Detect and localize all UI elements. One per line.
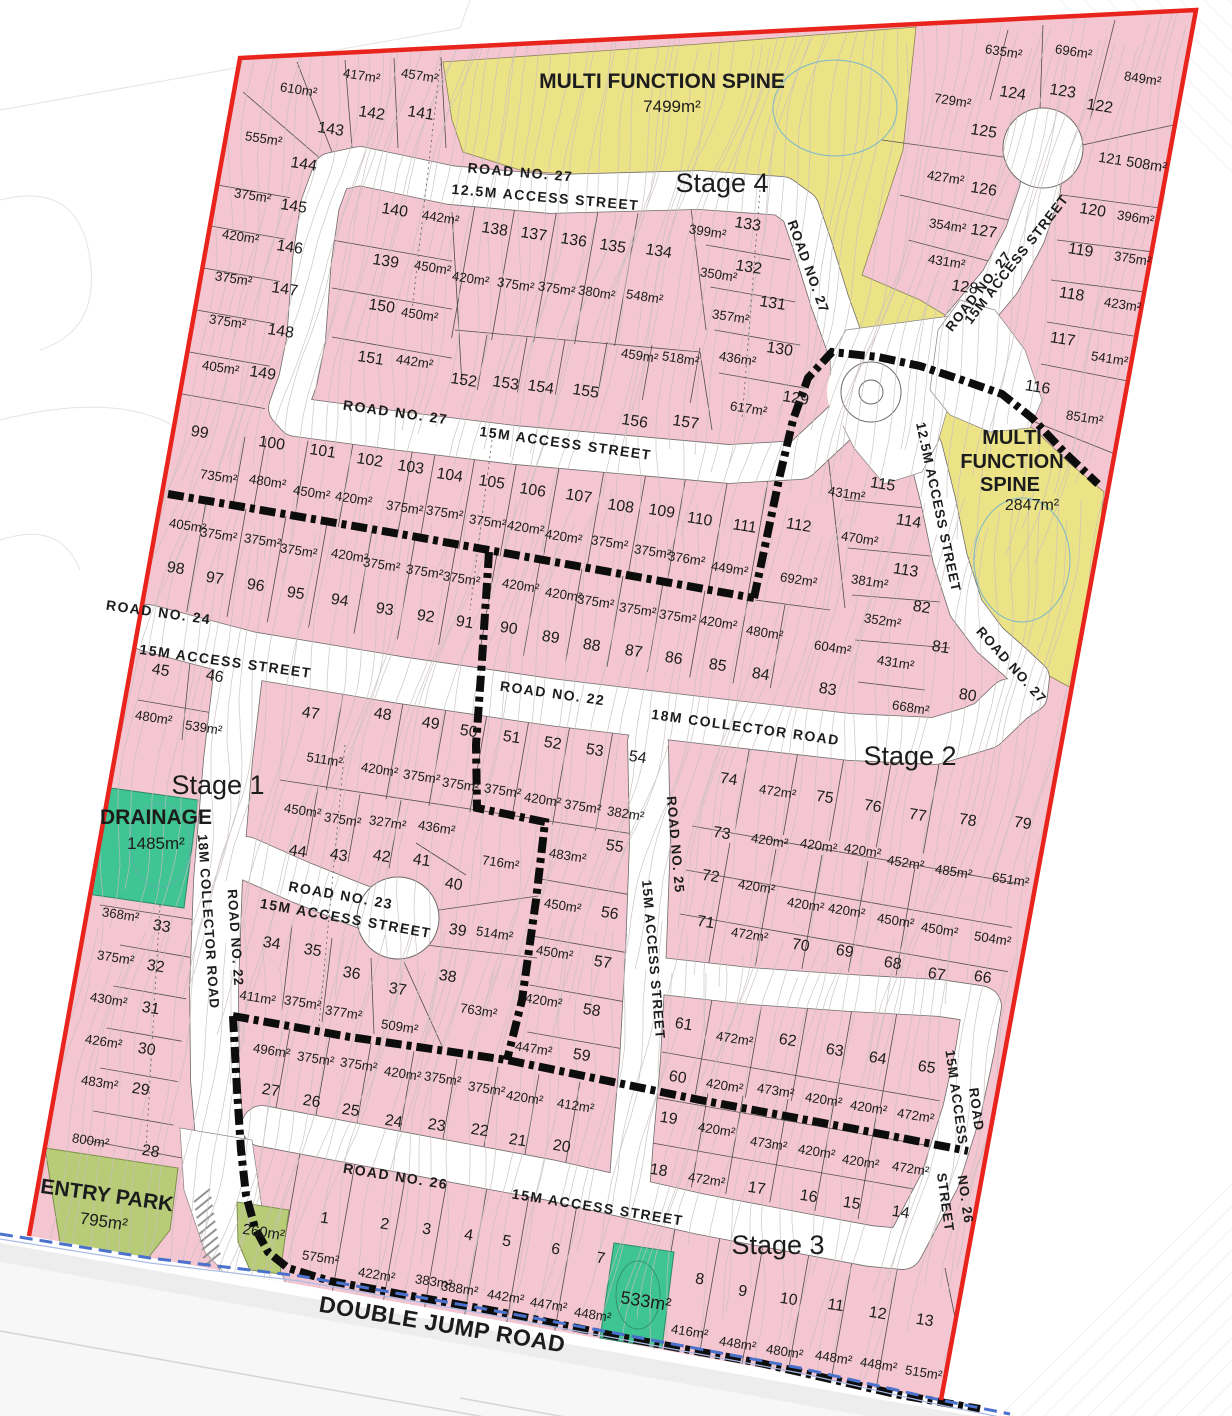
svg-text:41: 41 — [412, 851, 432, 871]
svg-text:46: 46 — [205, 667, 225, 687]
svg-text:66: 66 — [973, 968, 993, 988]
svg-text:72: 72 — [701, 867, 721, 887]
svg-text:70: 70 — [791, 936, 811, 956]
svg-text:94: 94 — [330, 591, 350, 611]
svg-text:14: 14 — [891, 1203, 911, 1223]
svg-text:97: 97 — [205, 569, 225, 589]
svg-text:51: 51 — [502, 728, 522, 748]
svg-text:33: 33 — [152, 917, 172, 937]
svg-text:84: 84 — [751, 665, 771, 685]
svg-text:1485m²: 1485m² — [127, 834, 185, 853]
svg-text:43: 43 — [329, 846, 349, 866]
svg-text:31: 31 — [141, 999, 161, 1019]
svg-text:90: 90 — [499, 619, 519, 639]
svg-text:67: 67 — [927, 965, 947, 985]
svg-text:44: 44 — [288, 842, 308, 862]
svg-text:57: 57 — [593, 953, 613, 973]
svg-text:SPINE: SPINE — [980, 474, 1040, 496]
svg-text:19: 19 — [659, 1109, 679, 1129]
svg-text:95: 95 — [286, 584, 306, 604]
svg-text:53: 53 — [585, 741, 605, 761]
svg-text:26: 26 — [302, 1092, 322, 1112]
svg-text:86: 86 — [664, 649, 684, 669]
svg-text:98: 98 — [166, 559, 186, 579]
svg-text:50: 50 — [459, 722, 479, 742]
svg-text:18: 18 — [649, 1161, 669, 1181]
svg-text:71: 71 — [696, 913, 716, 933]
svg-text:Stage 4: Stage 4 — [675, 168, 768, 198]
svg-text:73: 73 — [712, 824, 732, 844]
svg-text:37: 37 — [388, 980, 408, 1000]
svg-text:Stage 3: Stage 3 — [731, 1230, 824, 1260]
svg-text:39: 39 — [448, 921, 468, 941]
svg-text:MULTI FUNCTION SPINE: MULTI FUNCTION SPINE — [539, 70, 785, 93]
svg-text:62: 62 — [778, 1031, 798, 1051]
svg-text:Stage 2: Stage 2 — [863, 741, 956, 771]
svg-text:79: 79 — [1013, 814, 1033, 834]
svg-text:7499m²: 7499m² — [643, 97, 701, 116]
svg-text:42: 42 — [372, 847, 392, 867]
svg-text:92: 92 — [416, 607, 436, 627]
svg-text:45: 45 — [151, 661, 171, 681]
svg-text:64: 64 — [868, 1049, 888, 1069]
svg-text:32: 32 — [146, 957, 166, 977]
svg-text:65: 65 — [917, 1058, 937, 1078]
svg-text:27: 27 — [261, 1081, 281, 1101]
svg-text:48: 48 — [373, 705, 393, 725]
svg-text:2847m²: 2847m² — [1005, 497, 1060, 514]
svg-text:22: 22 — [470, 1121, 490, 1141]
svg-text:77: 77 — [908, 806, 928, 826]
svg-text:29: 29 — [131, 1080, 151, 1100]
svg-text:MULTI: MULTI — [982, 427, 1042, 449]
svg-text:40: 40 — [444, 875, 464, 895]
svg-text:12: 12 — [868, 1304, 888, 1324]
svg-text:99: 99 — [190, 423, 210, 443]
svg-text:24: 24 — [384, 1112, 404, 1132]
svg-text:76: 76 — [863, 797, 883, 817]
svg-text:80: 80 — [958, 686, 978, 706]
svg-text:34: 34 — [262, 934, 282, 954]
svg-text:DRAINAGE: DRAINAGE — [100, 806, 212, 829]
svg-text:74: 74 — [719, 770, 739, 790]
svg-text:58: 58 — [582, 1001, 602, 1021]
svg-text:83: 83 — [818, 680, 838, 700]
svg-text:21: 21 — [508, 1131, 528, 1151]
svg-text:Stage 1: Stage 1 — [171, 770, 264, 800]
svg-text:15: 15 — [842, 1194, 862, 1214]
svg-text:69: 69 — [835, 942, 855, 962]
svg-text:60: 60 — [668, 1068, 688, 1088]
svg-text:55: 55 — [605, 837, 625, 857]
svg-text:93: 93 — [375, 600, 395, 620]
svg-text:81: 81 — [931, 638, 951, 658]
svg-text:20: 20 — [552, 1137, 572, 1157]
svg-text:88: 88 — [582, 636, 602, 656]
svg-text:16: 16 — [799, 1187, 819, 1207]
svg-text:91: 91 — [455, 613, 475, 633]
svg-text:54: 54 — [628, 748, 648, 768]
svg-text:49: 49 — [421, 714, 441, 734]
svg-text:FUNCTION: FUNCTION — [960, 451, 1063, 473]
svg-text:38: 38 — [438, 967, 458, 987]
svg-text:28: 28 — [141, 1142, 161, 1162]
svg-text:59: 59 — [572, 1046, 592, 1066]
svg-text:82: 82 — [912, 598, 932, 618]
svg-text:68: 68 — [883, 954, 903, 974]
svg-text:47: 47 — [301, 704, 321, 724]
svg-text:23: 23 — [427, 1116, 447, 1136]
svg-text:25: 25 — [341, 1101, 361, 1121]
svg-text:30: 30 — [137, 1040, 157, 1060]
svg-text:89: 89 — [541, 628, 561, 648]
svg-text:56: 56 — [600, 904, 620, 924]
svg-text:61: 61 — [674, 1015, 694, 1035]
svg-text:17: 17 — [747, 1179, 767, 1199]
svg-text:52: 52 — [543, 734, 563, 754]
svg-text:85: 85 — [708, 656, 728, 676]
svg-text:11: 11 — [826, 1296, 845, 1315]
svg-text:75: 75 — [815, 788, 835, 808]
svg-text:87: 87 — [624, 642, 644, 662]
svg-text:96: 96 — [246, 576, 266, 596]
svg-text:13: 13 — [915, 1311, 935, 1331]
svg-text:35: 35 — [303, 941, 323, 961]
svg-text:10: 10 — [779, 1290, 799, 1310]
svg-text:63: 63 — [825, 1041, 845, 1061]
svg-text:78: 78 — [958, 811, 978, 831]
svg-text:36: 36 — [342, 964, 362, 984]
